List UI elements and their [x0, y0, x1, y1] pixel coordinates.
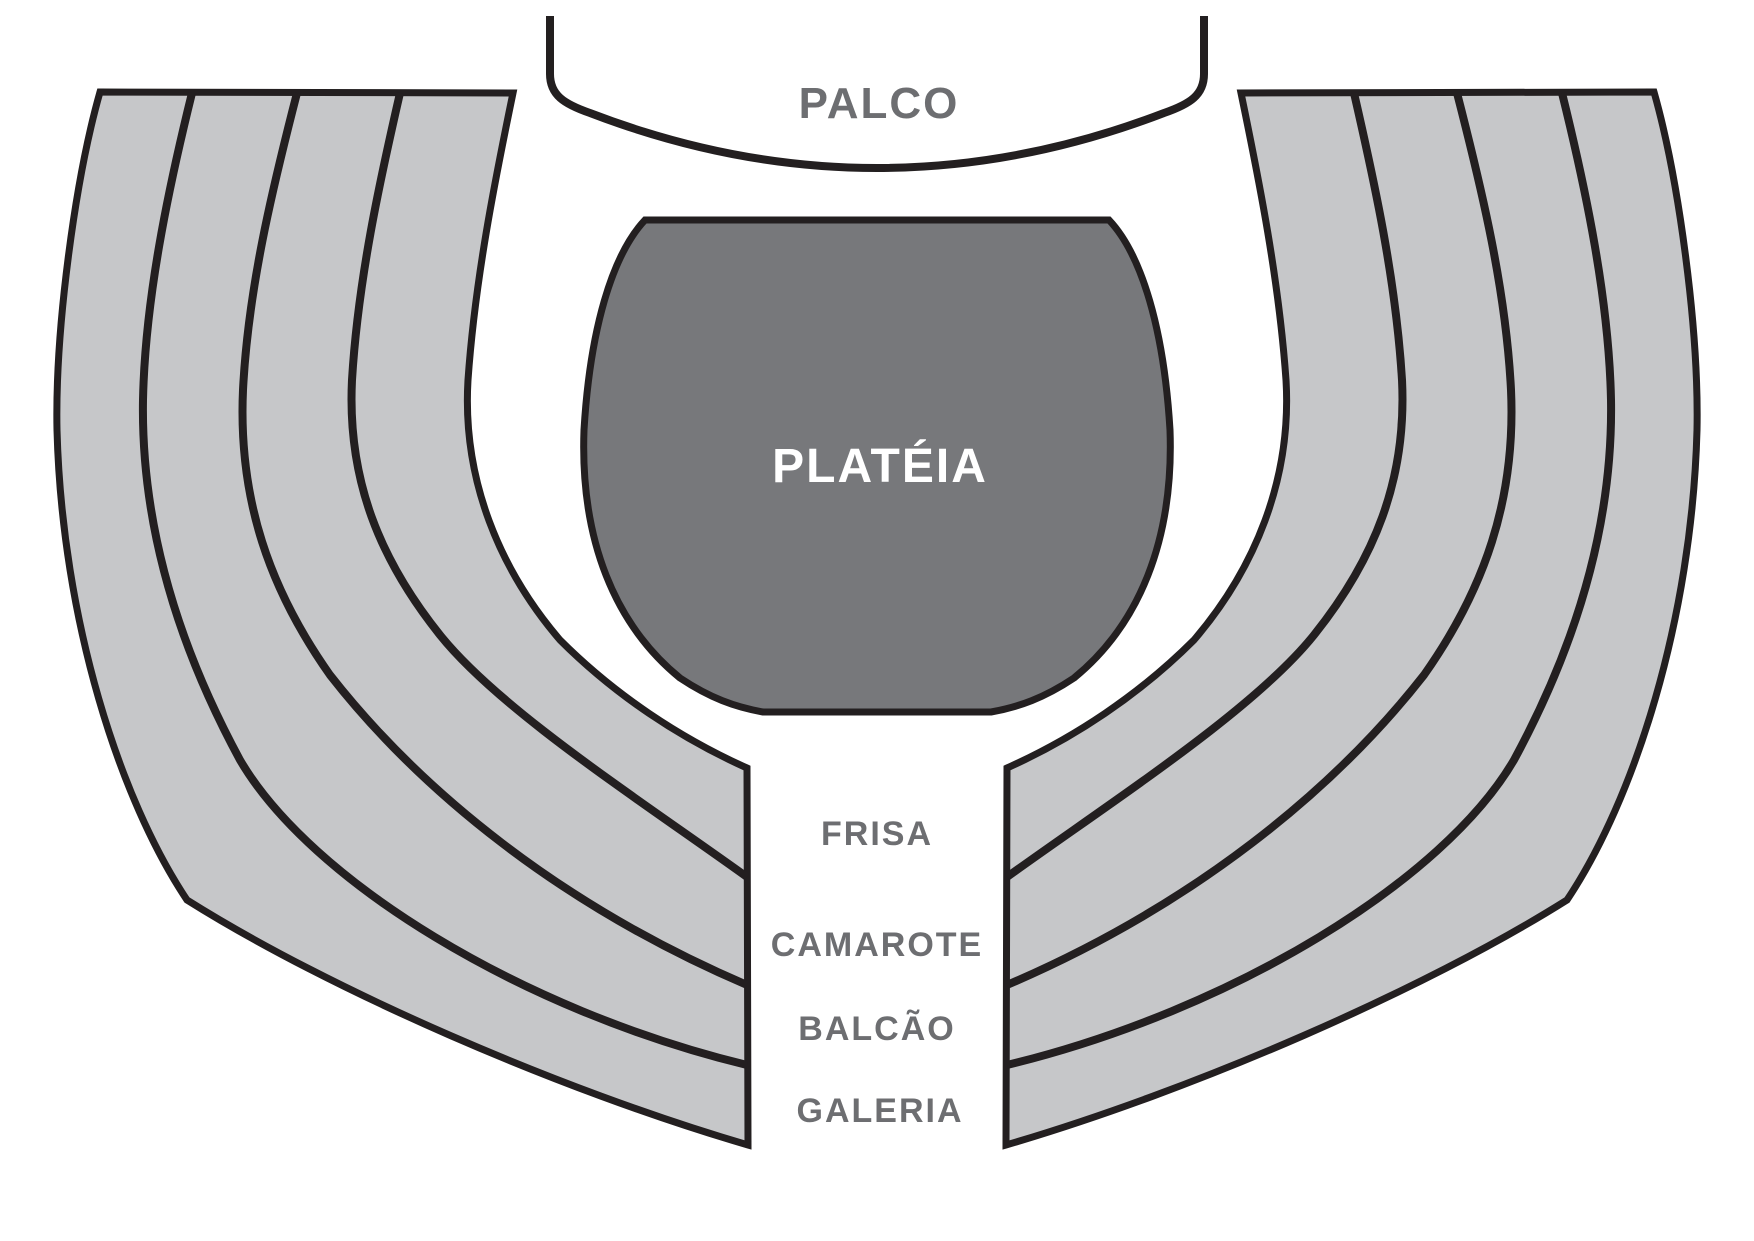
theater-seating-diagram: PALCO PLATÉIA FRISA CAMAROTE BALCÃO GALE…	[0, 0, 1754, 1241]
level-label-camarote: CAMAROTE	[771, 926, 983, 964]
level-label-frisa: FRISA	[821, 815, 933, 853]
audience-label: PLATÉIA	[772, 439, 988, 493]
stage-label: PALCO	[799, 79, 960, 128]
seating-chart-svg: PALCO PLATÉIA FRISA CAMAROTE BALCÃO GALE…	[0, 0, 1754, 1241]
level-label-balcao: BALCÃO	[798, 1010, 955, 1048]
level-label-galeria: GALERIA	[797, 1092, 964, 1130]
